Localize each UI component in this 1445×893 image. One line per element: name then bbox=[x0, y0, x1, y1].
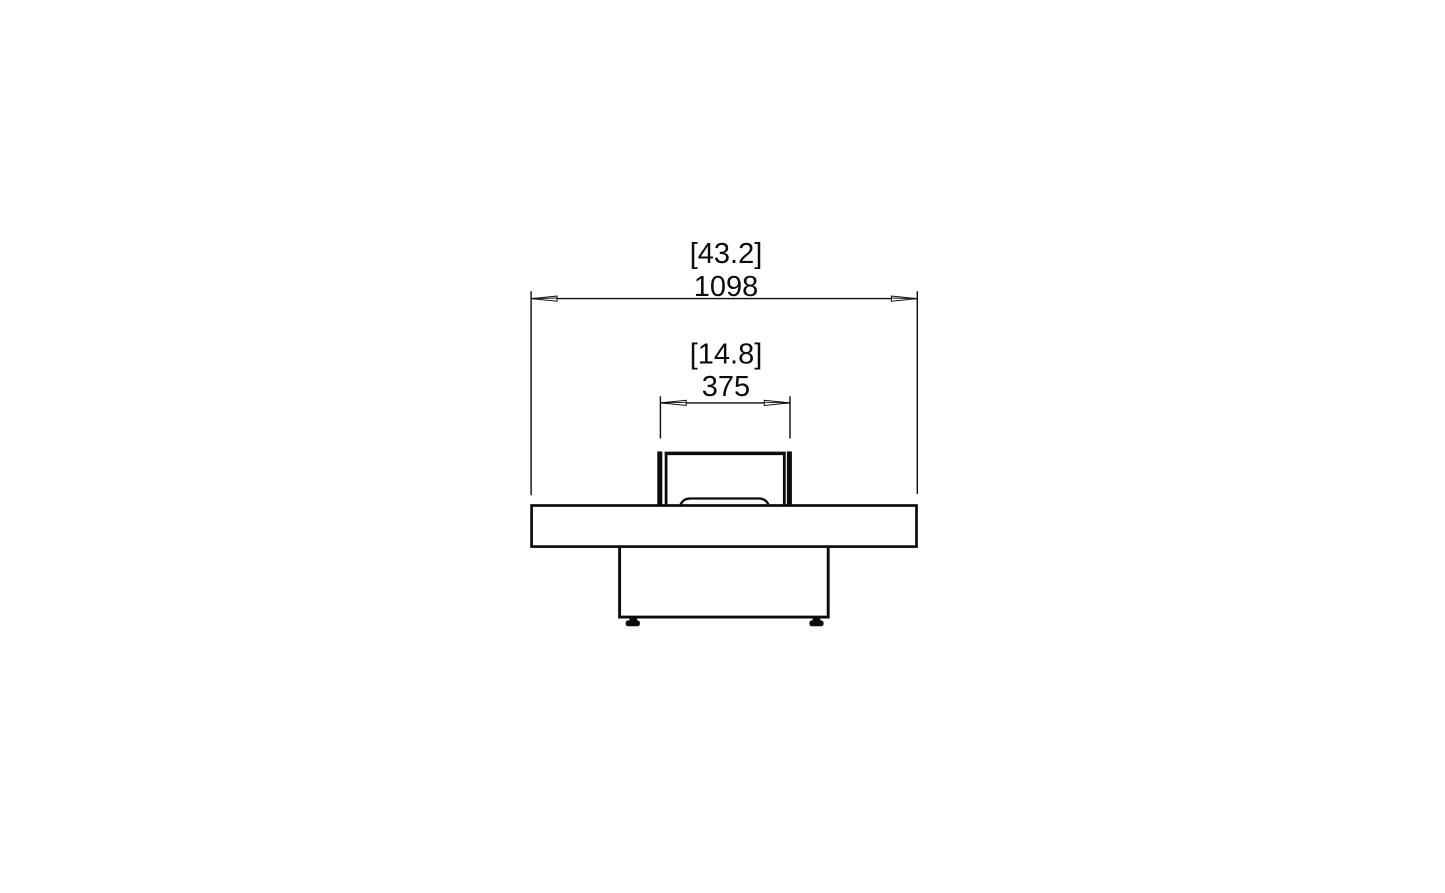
svg-text:375: 375 bbox=[702, 371, 750, 403]
svg-text:[14.8]: [14.8] bbox=[690, 338, 763, 370]
svg-text:[43.2]: [43.2] bbox=[690, 238, 763, 270]
